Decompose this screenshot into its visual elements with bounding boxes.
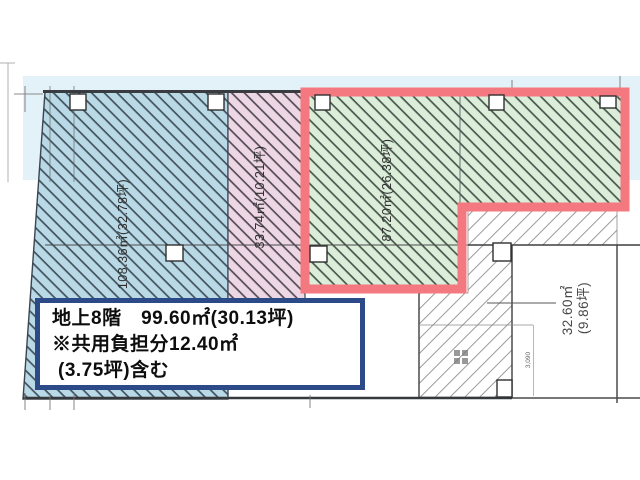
column-marker (315, 95, 330, 110)
common-area-label-line2: (9.86坪) (576, 282, 591, 334)
green-area-label: 87.20㎡(26.38坪) (380, 139, 394, 242)
floor-plan-page: 108.36㎡(32.78坪) 33.74㎡(10.21坪) 87.20㎡(26… (0, 0, 640, 480)
common-share-note-cont: (3.75坪)含む (52, 358, 354, 384)
column-marker (208, 94, 224, 110)
column-marker (493, 243, 511, 261)
unit-info-box: 地上8階 99.60㎡(30.13坪) ※共用負担分12.40㎡ (3.75坪)… (35, 298, 365, 390)
column-marker (310, 246, 327, 262)
column-marker (600, 96, 616, 108)
column-marker (166, 245, 183, 261)
common-area-label: 32.60㎡ (9.86坪) (560, 281, 591, 336)
floor-plan-drawing: 108.36㎡(32.78坪) 33.74㎡(10.21坪) 87.20㎡(26… (0, 0, 640, 480)
blue-area-label: 108.36㎡(32.78坪) (116, 179, 130, 289)
dimension-text: 3,090 (525, 351, 532, 368)
unit-floor-and-area: 地上8階 99.60㎡(30.13坪) (52, 306, 354, 332)
column-marker (489, 95, 504, 110)
wall-notch (497, 380, 512, 397)
column-marker (70, 94, 86, 110)
pink-area-label: 33.74㎡(10.21坪) (253, 146, 267, 249)
common-area-label-line1: 32.60㎡ (560, 285, 575, 335)
common-share-note: ※共用負担分12.40㎡ (52, 332, 354, 358)
